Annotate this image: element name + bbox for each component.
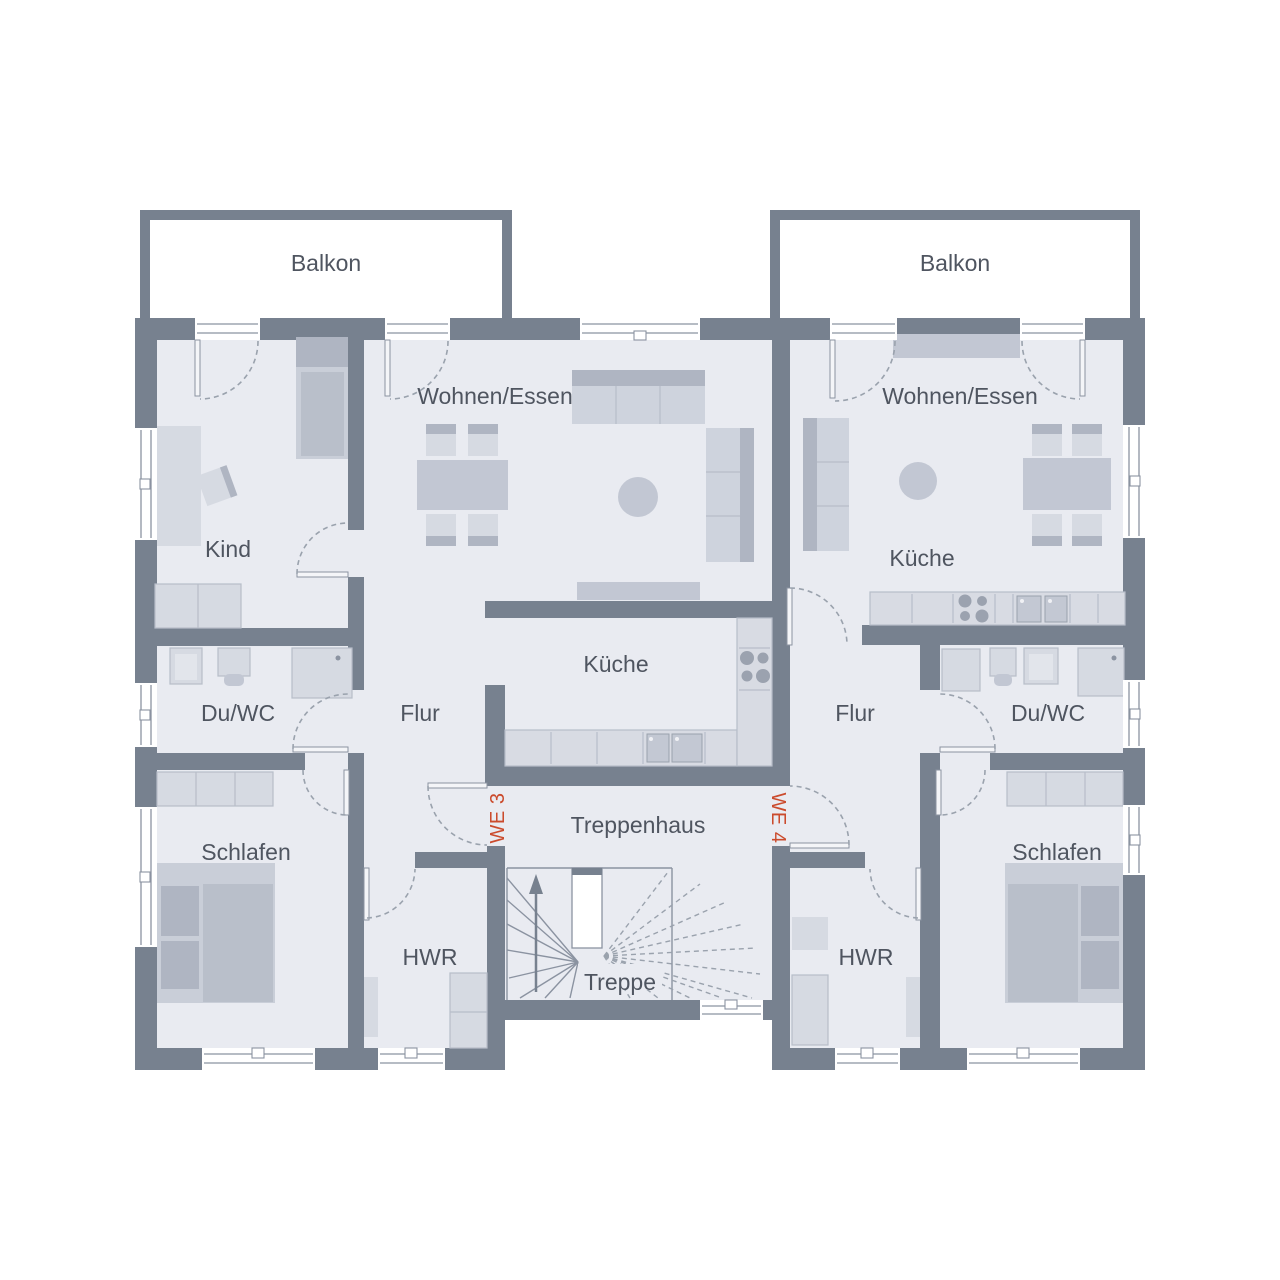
toilet — [218, 648, 250, 676]
door-leaf — [1080, 340, 1085, 396]
desk — [157, 426, 201, 546]
room-label-du-wc-we3: Du/WC — [201, 700, 275, 726]
appliance-block — [906, 977, 920, 1037]
cabinet — [942, 649, 980, 691]
corner-sofa — [706, 428, 740, 562]
pillow — [1081, 941, 1119, 989]
washer — [364, 977, 378, 1037]
unit-tag-we4: WE 4 — [767, 793, 789, 844]
room-label-treppenhaus: Treppenhaus — [571, 812, 706, 838]
door-leaf — [385, 340, 390, 396]
door-leaf — [364, 868, 369, 920]
door-leaf — [344, 770, 349, 815]
kitchen-counter — [870, 592, 1125, 625]
door-leaf — [195, 340, 200, 396]
building-floor — [135, 318, 1145, 1070]
balcony-label-left: Balkon — [291, 250, 361, 276]
door-leaf — [790, 843, 849, 848]
appliance-block — [792, 917, 828, 950]
stair-void — [572, 868, 602, 948]
room-label-kueche-we4: Küche — [889, 545, 954, 571]
sideboard — [893, 334, 1020, 358]
party-wall — [772, 340, 790, 1070]
shower — [292, 648, 352, 698]
hob — [959, 595, 972, 608]
duvet — [1008, 884, 1078, 1002]
recess — [505, 1020, 772, 1082]
hob — [740, 651, 754, 665]
sofa-back — [803, 418, 817, 551]
door-leaf — [830, 340, 835, 398]
sink — [1045, 596, 1067, 622]
coffee-table — [899, 462, 937, 500]
appliance-block — [450, 973, 487, 1048]
room-label-kind-we3: Kind — [205, 536, 251, 562]
room-label-flur-we3: Flur — [400, 700, 440, 726]
door-leaf — [916, 868, 921, 920]
sofa — [572, 386, 705, 424]
dining-table — [1023, 458, 1111, 510]
room-label-treppe: Treppe — [584, 969, 656, 995]
floor-plan-page: Balkon Balkon Wohnen/Essen Kind Küche Du… — [0, 0, 1280, 1280]
unit-tag-we3: WE 3 — [487, 793, 509, 844]
shower — [1078, 648, 1124, 696]
room-label-flur-we4: Flur — [835, 700, 875, 726]
door-leaf — [297, 572, 348, 577]
room-label-hwr-we4: HWR — [839, 944, 894, 970]
coffee-table — [618, 477, 658, 517]
room-label-wohnen-essen-we3: Wohnen/Essen — [417, 383, 573, 409]
dining-table — [417, 460, 508, 510]
wardrobe — [157, 772, 273, 806]
room-label-schlafen-we3: Schlafen — [201, 839, 291, 865]
door-leaf — [428, 783, 487, 788]
pillow — [1081, 886, 1119, 936]
door-leaf — [787, 588, 792, 645]
room-label-du-wc-we4: Du/WC — [1011, 700, 1085, 726]
door-leaf — [293, 747, 348, 752]
sofa-back — [572, 370, 705, 386]
washer — [792, 975, 828, 1045]
kitchen-counter — [737, 618, 772, 766]
pillow — [161, 886, 199, 936]
room-label-schlafen-we4: Schlafen — [1012, 839, 1102, 865]
door-leaf — [940, 747, 995, 752]
sofa — [817, 418, 849, 551]
room-label-hwr-we3: HWR — [403, 944, 458, 970]
room-label-kueche-we3: Küche — [583, 651, 648, 677]
room-label-wohnen-essen-we4: Wohnen/Essen — [882, 383, 1038, 409]
pillow — [161, 941, 199, 989]
wardrobe — [1007, 772, 1123, 806]
balcony-label-right: Balkon — [920, 250, 990, 276]
duvet — [203, 884, 273, 1002]
sideboard — [577, 582, 700, 600]
kueche-furniture-we4 — [870, 592, 1125, 625]
floor-plan-svg: Balkon Balkon Wohnen/Essen Kind Küche Du… — [0, 0, 1280, 1280]
door-leaf — [936, 770, 941, 815]
toilet — [990, 648, 1016, 676]
